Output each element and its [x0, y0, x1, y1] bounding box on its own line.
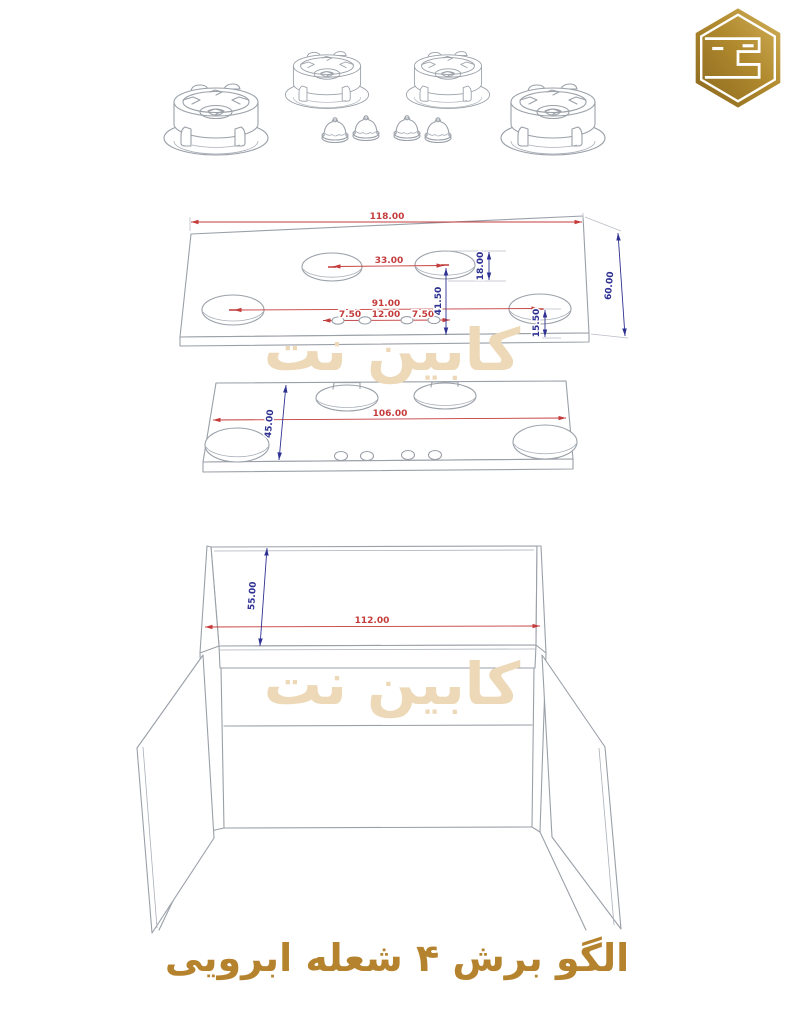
- burner-cap-1: [322, 118, 348, 143]
- logo-dash-right: [743, 44, 754, 47]
- cabinet: 112.00 55.00: [137, 546, 621, 933]
- dim-mid-to-back: 18.00: [476, 252, 486, 280]
- dim-cabinet-top-depth: 55.00: [247, 581, 259, 610]
- dim-right-to-front: 15.50: [532, 309, 542, 337]
- dim-mid-hole-spacing: 33.00: [375, 256, 403, 266]
- dim-outer-hole-spacing: 91.00: [372, 299, 400, 309]
- dim-mid-to-front: 41.50: [434, 287, 444, 315]
- burner-cap-4: [425, 118, 451, 143]
- burner-grate-left: [164, 84, 268, 155]
- burner-grate-right: [501, 84, 605, 155]
- page-title: الگو برش ۴ شعله ابرویی: [165, 936, 629, 980]
- cabinet-door-right: [542, 655, 621, 929]
- burner-grate-mid-right: [406, 52, 489, 109]
- burner-cap-2: [353, 116, 379, 141]
- logo-dash-left: [712, 47, 723, 50]
- dim-top-plate-depth: 60.00: [604, 271, 616, 300]
- cabinet-door-left: [137, 655, 214, 933]
- hexagon-c-logo: [692, 6, 784, 110]
- burner-grates-row: [164, 52, 605, 155]
- watermark-upper: کابین نت: [264, 316, 521, 384]
- cabinet-lid: [211, 546, 537, 646]
- page: 118.00 33.00 91.00 7.50 12.00 7.50: [0, 0, 791, 1024]
- dim-lower-plate-width: 106.00: [373, 409, 408, 419]
- dim-cabinet-width: 112.00: [355, 616, 390, 626]
- lower-plate: 106.00 45.00: [203, 381, 577, 472]
- dim-top-plate-width: 118.00: [370, 212, 405, 222]
- burner-grate-mid-left: [285, 52, 368, 109]
- technical-drawing: 118.00 33.00 91.00 7.50 12.00 7.50: [0, 0, 791, 1024]
- watermark-lower: کابین نت: [264, 650, 521, 718]
- burner-cap-3: [394, 116, 420, 141]
